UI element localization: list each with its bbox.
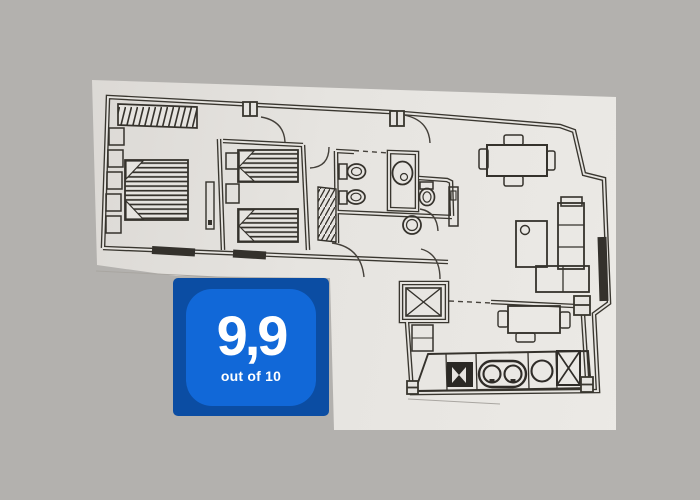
twin-bed-1 <box>238 150 298 182</box>
service-shaft <box>406 288 441 316</box>
toilet <box>339 164 366 179</box>
kitchen-table <box>498 306 570 342</box>
screenshot-root: 9,9 out of 10 <box>0 0 700 500</box>
bedroom-door-panel <box>206 182 214 229</box>
dashed-lines <box>354 151 491 304</box>
wardrobe <box>118 104 197 128</box>
rating-badge-inner: 9,9 out of 10 <box>186 289 316 406</box>
chair <box>560 312 570 328</box>
fridge <box>557 351 580 385</box>
floor-plan-drawing <box>0 0 700 500</box>
nightstands <box>226 153 239 203</box>
burner <box>532 361 553 382</box>
rating-badge: 9,9 out of 10 <box>173 278 329 416</box>
chair <box>516 333 535 342</box>
dining-table <box>479 135 555 186</box>
separator-post <box>574 296 590 315</box>
rating-score: 9,9 <box>217 308 286 364</box>
stove <box>447 362 473 387</box>
coffee-table <box>516 221 547 267</box>
wash-basin <box>403 216 421 234</box>
corner-sofa <box>536 197 589 292</box>
rating-caption: out of 10 <box>221 368 281 384</box>
chair <box>498 311 508 327</box>
service-duct <box>318 187 336 242</box>
wc-toilet <box>420 182 435 206</box>
double-sink <box>479 361 526 387</box>
chair <box>547 151 555 170</box>
chair <box>504 176 523 186</box>
closet-units <box>106 128 124 233</box>
double-bed <box>125 160 188 220</box>
chair <box>504 135 523 145</box>
bidet <box>339 190 365 204</box>
entry-door-arc <box>261 117 285 142</box>
twin-bed-2 <box>238 209 298 242</box>
kitchen-cabinet <box>412 325 433 351</box>
shower <box>393 162 413 185</box>
